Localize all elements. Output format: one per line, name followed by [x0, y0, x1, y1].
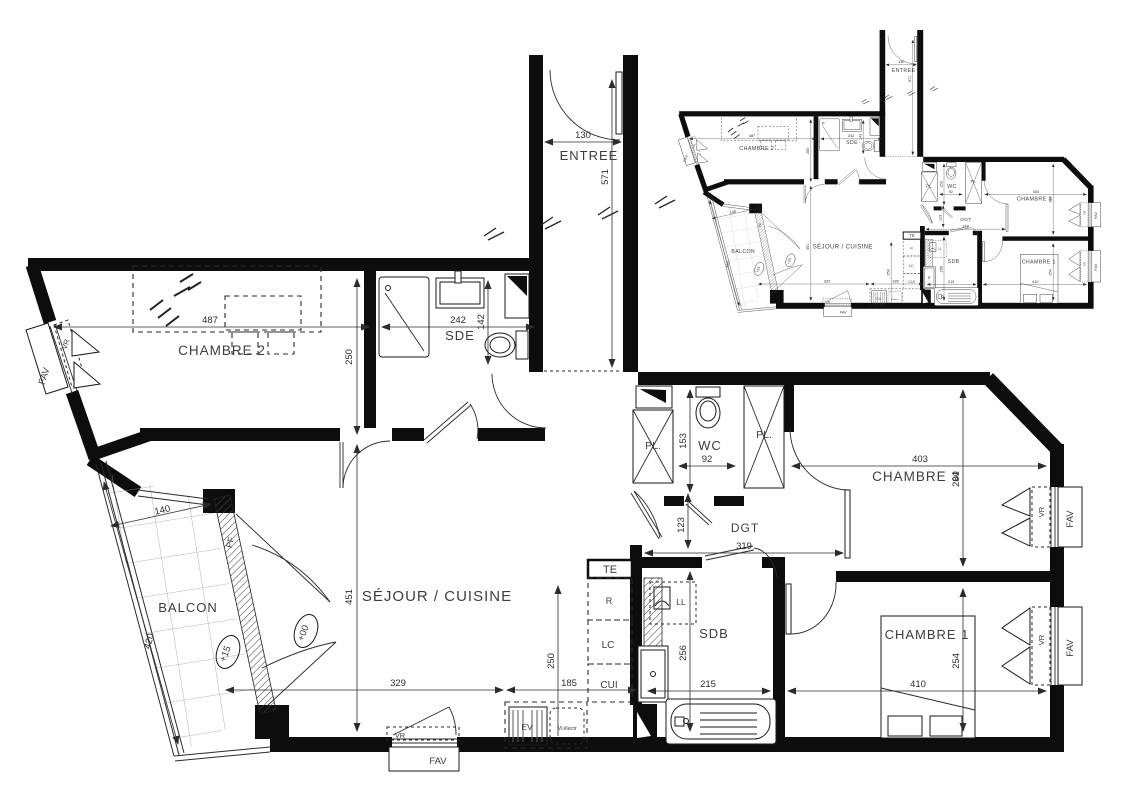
floor-plan-page: ENTREE 130 571 CHAMBRE 2 487 250 SDE 242…	[0, 0, 1146, 800]
floor-plan-drawing: ENTREE 130 571 CHAMBRE 2 487 250 SDE 242…	[0, 0, 1146, 800]
mini-plan-inset	[678, 30, 1100, 316]
